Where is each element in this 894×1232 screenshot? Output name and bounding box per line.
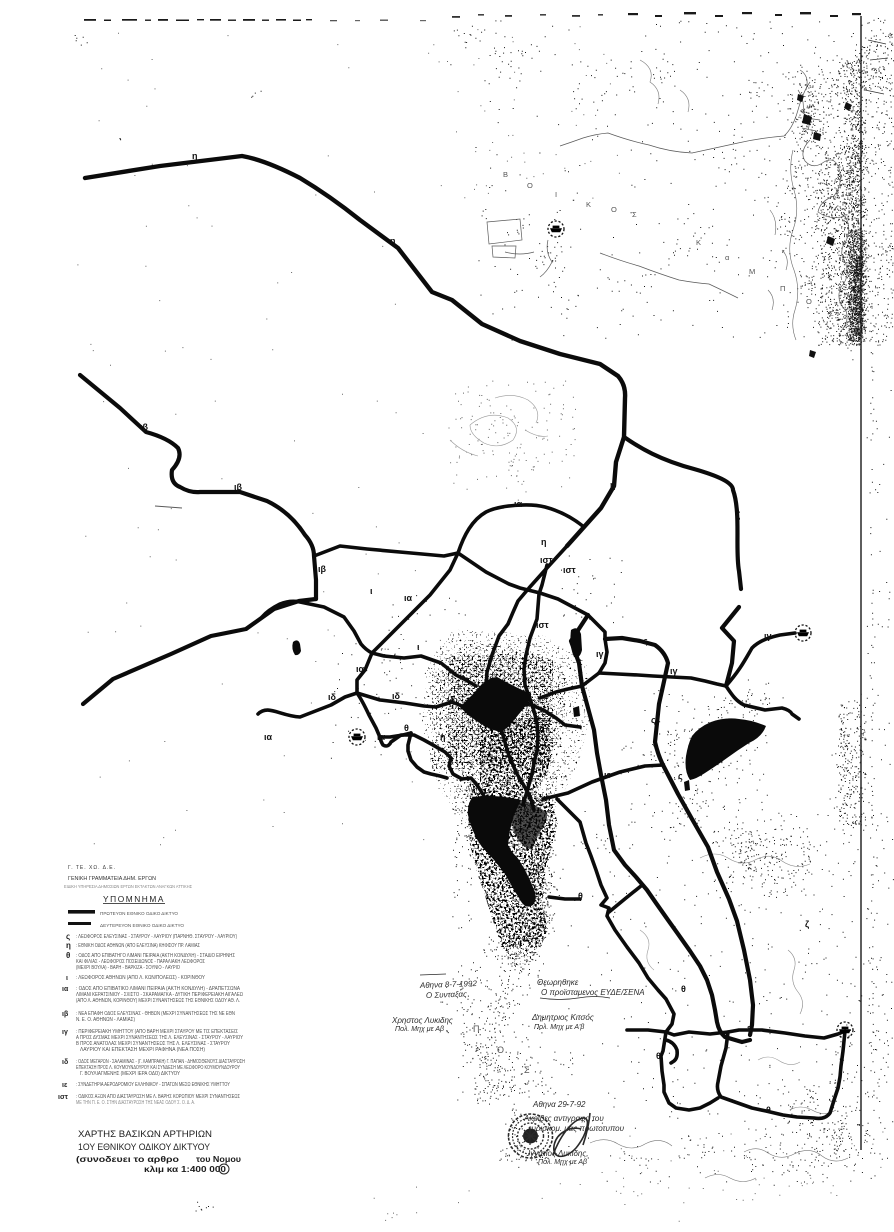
svg-text:ζ: ζ: [805, 919, 809, 929]
svg-text:Π: Π: [780, 284, 785, 293]
svg-text:Πολ. Μηχ με Αβ: Πολ. Μηχ με Αβ: [538, 1159, 587, 1166]
svg-text:ιδ: ιδ: [62, 1059, 68, 1066]
svg-text:του Νομου: του Νομου: [196, 1155, 241, 1164]
svg-text:ι: ι: [370, 586, 373, 596]
svg-text:ΓΕΝΙΚΗ ΓΡΑΜΜΑΤΕΙΑ ΔΗΜ. ΕΡΓΩΝ: ΓΕΝΙΚΗ ΓΡΑΜΜΑΤΕΙΑ ΔΗΜ. ΕΡΓΩΝ: [68, 876, 156, 882]
svg-text:: ΕΘΝΙΚΗ ΟΔΟΣ ΑΘΗΝΩΝ (ΑΠΟ: : ΕΘΝΙΚΗ ΟΔΟΣ ΑΘΗΝΩΝ (ΑΠΟ ΕΛΕΥΣΙΝΑ) ΚΗΦΙ…: [76, 943, 200, 949]
svg-text:ιγ: ιγ: [670, 666, 678, 676]
svg-text:ΧΑΡΤΗΣ ΒΑΣΙΚΩΝ ΑΡΤΗΡΙΩΝ: ΧΑΡΤΗΣ ΒΑΣΙΚΩΝ ΑΡΤΗΡΙΩΝ: [78, 1129, 212, 1140]
svg-text:η: η: [390, 236, 396, 246]
svg-text:ΜΕ ΤΗΝ Π. Ε. Ο. ΣΤΗΝ ΔΙΑΣΤ: ΜΕ ΤΗΝ Π. Ε. Ο. ΣΤΗΝ ΔΙΑΣΤΑΥΡΩΣΗ ΤΗΣ ΝΕΑ…: [76, 1100, 195, 1106]
svg-text:ιστ: ιστ: [563, 565, 576, 575]
svg-text:ιστ: ιστ: [540, 555, 553, 565]
svg-text:Γ. ΤΕ. ΧΩ. Δ.Ε.: Γ. ΤΕ. ΧΩ. Δ.Ε.: [68, 865, 116, 871]
svg-text:ε: ε: [747, 1023, 752, 1033]
svg-text:η: η: [541, 537, 547, 547]
svg-text:Γ. ΒΟΥΛΙΑΓΜΕΝΗΣ (ΜΕΧΡΙ ΙΕΡΑ: Γ. ΒΟΥΛΙΑΓΜΕΝΗΣ (ΜΕΧΡΙ ΙΕΡΑ ΟΔΟ) ΔΙΚΤΥΟΥ: [80, 1071, 181, 1077]
svg-text:ιγ: ιγ: [62, 1029, 68, 1036]
svg-text:Β: Β: [503, 170, 508, 179]
svg-text:Πολ. Μηχ με Α'β: Πολ. Μηχ με Α'β: [534, 1024, 584, 1031]
svg-text:ιστ: ιστ: [536, 620, 549, 630]
svg-text:ΔΕΥΤΕΡΕΥΟΝ ΕΘΝΙΚΟ ΟΔΙΚΟ ΔΙΚ: ΔΕΥΤΕΡΕΥΟΝ ΕΘΝΙΚΟ ΟΔΙΚΟ ΔΙΚΤΥΟ: [100, 923, 184, 928]
svg-text:θ: θ: [66, 951, 70, 960]
svg-text:Αθηνα 8-7-1992: Αθηνα 8-7-1992: [419, 979, 478, 990]
svg-text:Χρηστος Λυκιδης: Χρηστος Λυκιδης: [391, 1016, 453, 1025]
svg-text:ιβ: ιβ: [318, 564, 327, 574]
svg-text:Κ: Κ: [586, 200, 591, 209]
svg-text:1ΟΥ ΕΘΝΙΚΟΥ ΟΔΙΚΟΥ ΔΙΚΤΥΟΥ: 1ΟΥ ΕΘΝΙΚΟΥ ΟΔΙΚΟΥ ΔΙΚΤΥΟΥ: [78, 1142, 211, 1153]
svg-text:ιβ: ιβ: [234, 482, 243, 492]
svg-text:Π: Π: [473, 1024, 480, 1034]
svg-text:Σ: Σ: [632, 210, 637, 219]
svg-text:Κ: Κ: [696, 238, 701, 247]
svg-text:θ: θ: [578, 891, 583, 901]
svg-text:ιε: ιε: [604, 770, 612, 780]
svg-text:ιδ: ιδ: [328, 692, 337, 702]
svg-text:: ΛΕΩΦΟΡΟΣ ΑΘΗΝΩΝ (ΑΠΟ Λ. Κ: : ΛΕΩΦΟΡΟΣ ΑΘΗΝΩΝ (ΑΠΟ Λ. ΚΩΝ/ΠΟΛΕΩΣ) - …: [76, 975, 206, 981]
svg-text:Ακριβες αντιγραφο του: Ακριβες αντιγραφο του: [523, 1114, 604, 1123]
svg-text:ιβ: ιβ: [62, 1011, 69, 1018]
svg-text:ΠΡΩΤΕΥΟΝ ΕΘΝΙΚΟ ΟΔΙΚΟ ΔΙΚΤΥ: ΠΡΩΤΕΥΟΝ ΕΘΝΙΚΟ ΟΔΙΚΟ ΔΙΚΤΥΟ: [100, 911, 178, 916]
svg-text:Ο προϊσταμενος ΕΥΔΕ/ΣΕΝΑ: Ο προϊσταμενος ΕΥΔΕ/ΣΕΝΑ: [541, 988, 645, 997]
svg-text:Θεωρηθηκε: Θεωρηθηκε: [537, 978, 579, 987]
svg-text:ιστ: ιστ: [58, 1094, 69, 1101]
svg-text:ΛΑΥΡΙΟΥ ΚΑΙ ΕΠΕΚΤΑΣΗ ΜΕΧΡΙ: ΛΑΥΡΙΟΥ ΚΑΙ ΕΠΕΚΤΑΣΗ ΜΕΧΡΙ ΡΑΦΗΝΑ (ΝΕΑ Π…: [80, 1047, 205, 1053]
svg-text:ια: ια: [404, 593, 413, 603]
svg-text:Ν. Ε. Ο. ΑΘΗΝΩΝ - ΛΑΜΙΑΣ): Ν. Ε. Ο. ΑΘΗΝΩΝ - ΛΑΜΙΑΣ): [76, 1017, 135, 1023]
svg-text:ΥΠΟΜΝΗΜΑ: ΥΠΟΜΝΗΜΑ: [103, 895, 165, 904]
svg-text:θ: θ: [766, 1105, 771, 1115]
svg-text:ια: ια: [356, 664, 365, 674]
svg-text:ιδ: ιδ: [392, 691, 401, 701]
svg-text:η: η: [192, 151, 198, 161]
svg-text:ια: ια: [62, 986, 69, 993]
svg-text:θ: θ: [656, 1051, 661, 1061]
svg-text:ια: ια: [264, 732, 273, 742]
svg-text:ς: ς: [651, 715, 656, 725]
svg-text:Ο: Ο: [806, 297, 812, 306]
svg-text:α: α: [725, 253, 730, 262]
svg-text:η: η: [440, 732, 446, 742]
svg-text:ιγ: ιγ: [596, 649, 604, 659]
svg-text:ιβ: ιβ: [140, 422, 149, 432]
svg-text:ι: ι: [66, 975, 68, 982]
svg-text:Ο: Ο: [497, 1045, 504, 1055]
svg-text:ιε: ιε: [62, 1082, 68, 1089]
svg-text:ΕΙΔΙΚΗ ΥΠΗΡΕΣΙΑ ΔΗΜΟΣΙΩΝ ΕΡ: ΕΙΔΙΚΗ ΥΠΗΡΕΣΙΑ ΔΗΜΟΣΙΩΝ ΕΡΓΩΝ ΕΚΤΑΚΤΩΝ …: [64, 884, 192, 889]
svg-text:Σ: Σ: [829, 309, 834, 318]
svg-text:ια: ια: [377, 732, 386, 742]
svg-text:η: η: [610, 480, 616, 490]
svg-text:: ΛΕΩΦΟΡΟΣ ΕΛΕΥΣΙΝΑΣ - ΣΤΑΥΡΟ: : ΛΕΩΦΟΡΟΣ ΕΛΕΥΣΙΝΑΣ - ΣΤΑΥΡΟΥ - ΛΑΥΡΙΟΥ…: [76, 934, 237, 940]
svg-text:Μ: Μ: [749, 267, 755, 276]
svg-text:ς: ς: [643, 636, 648, 646]
svg-text:Ο: Ο: [527, 181, 533, 190]
svg-text:ια: ια: [514, 499, 523, 509]
svg-text:Πολ. Μηχ με Αβ: Πολ. Μηχ με Αβ: [395, 1026, 444, 1033]
svg-text:Ο Συνταξας: Ο Συνταξας: [426, 990, 467, 1000]
svg-text:ς: ς: [66, 932, 70, 941]
svg-text:(ΑΠΟ Λ. ΑΘΗΝΩΝ, ΚΟΡΙΝΘΟΥ): (ΑΠΟ Λ. ΑΘΗΝΩΝ, ΚΟΡΙΝΘΟΥ) ΜΕΧΡΙ ΣΥΝΑΝΤΗΣ…: [76, 998, 240, 1004]
svg-text:: ΣΥΝΔΕΤΗΡΙΑ ΑΕΡΟΔΡΟΜΙΟΥ ΕΛΛ: : ΣΥΝΔΕΤΗΡΙΑ ΑΕΡΟΔΡΟΜΙΟΥ ΕΛΛΗΝΙΚΟΥ - ΣΠΑ…: [76, 1082, 231, 1088]
svg-text:η: η: [66, 941, 71, 950]
svg-text:Σ: Σ: [524, 1065, 530, 1075]
svg-text:ιγ: ιγ: [764, 631, 772, 641]
svg-text:ς: ς: [678, 771, 683, 781]
svg-text:Αθηνα 29-7-92: Αθηνα 29-7-92: [532, 1100, 586, 1109]
svg-text:Δημητριος Κιτσος: Δημητριος Κιτσος: [531, 1013, 594, 1022]
svg-text:κλιμ κα 1:400 000: κλιμ κα 1:400 000: [144, 1165, 227, 1174]
svg-text:θ: θ: [404, 723, 409, 733]
svg-text:(συνοδευει το αρθρο: (συνοδευει το αρθρο: [76, 1155, 179, 1164]
svg-text:θ: θ: [681, 984, 686, 994]
svg-text:ι: ι: [417, 642, 420, 652]
svg-text:ιδ: ιδ: [447, 695, 456, 705]
svg-text:Ι: Ι: [555, 190, 557, 199]
svg-text:Ο: Ο: [611, 205, 617, 214]
svg-text:(ΜΕΧΡΙ ΒΟΥΛΑ) - ΒΑΡΗ - ΒΑΡΚΙΖ: (ΜΕΧΡΙ ΒΟΥΛΑ) - ΒΑΡΗ - ΒΑΡΚΙΖΑ - ΣΟΥΝΙΟ …: [76, 965, 180, 971]
svg-text:ιε: ιε: [540, 704, 548, 714]
svg-text:ζ: ζ: [736, 510, 740, 520]
